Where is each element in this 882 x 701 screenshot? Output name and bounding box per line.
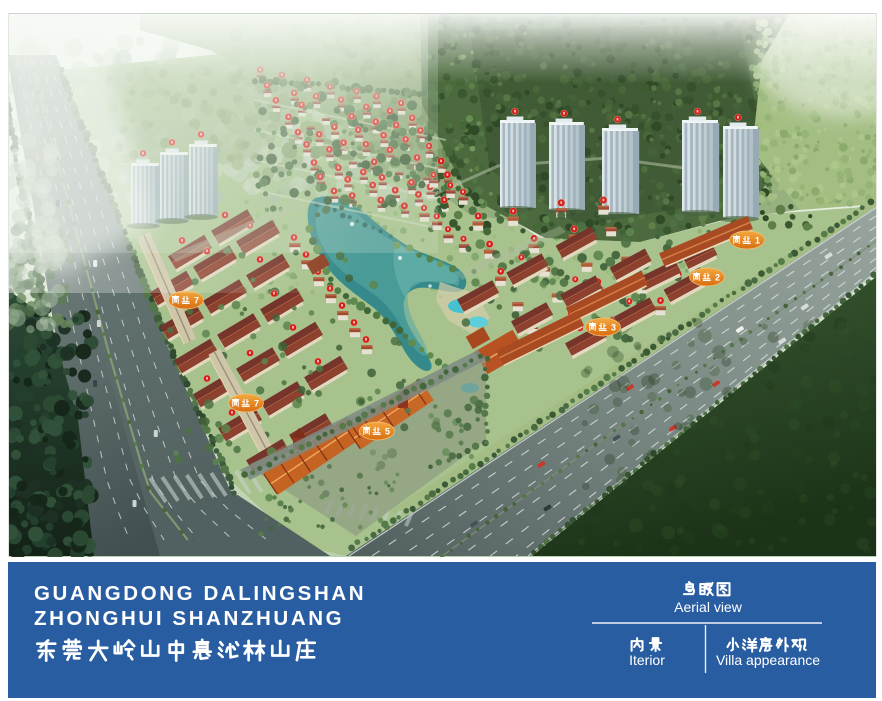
svg-text:1: 1 xyxy=(755,235,760,245)
svg-text:5: 5 xyxy=(385,426,390,436)
svg-text:7: 7 xyxy=(194,295,199,305)
svg-text:3: 3 xyxy=(611,322,616,332)
svg-text:7: 7 xyxy=(254,398,259,408)
svg-text:2: 2 xyxy=(715,272,720,282)
